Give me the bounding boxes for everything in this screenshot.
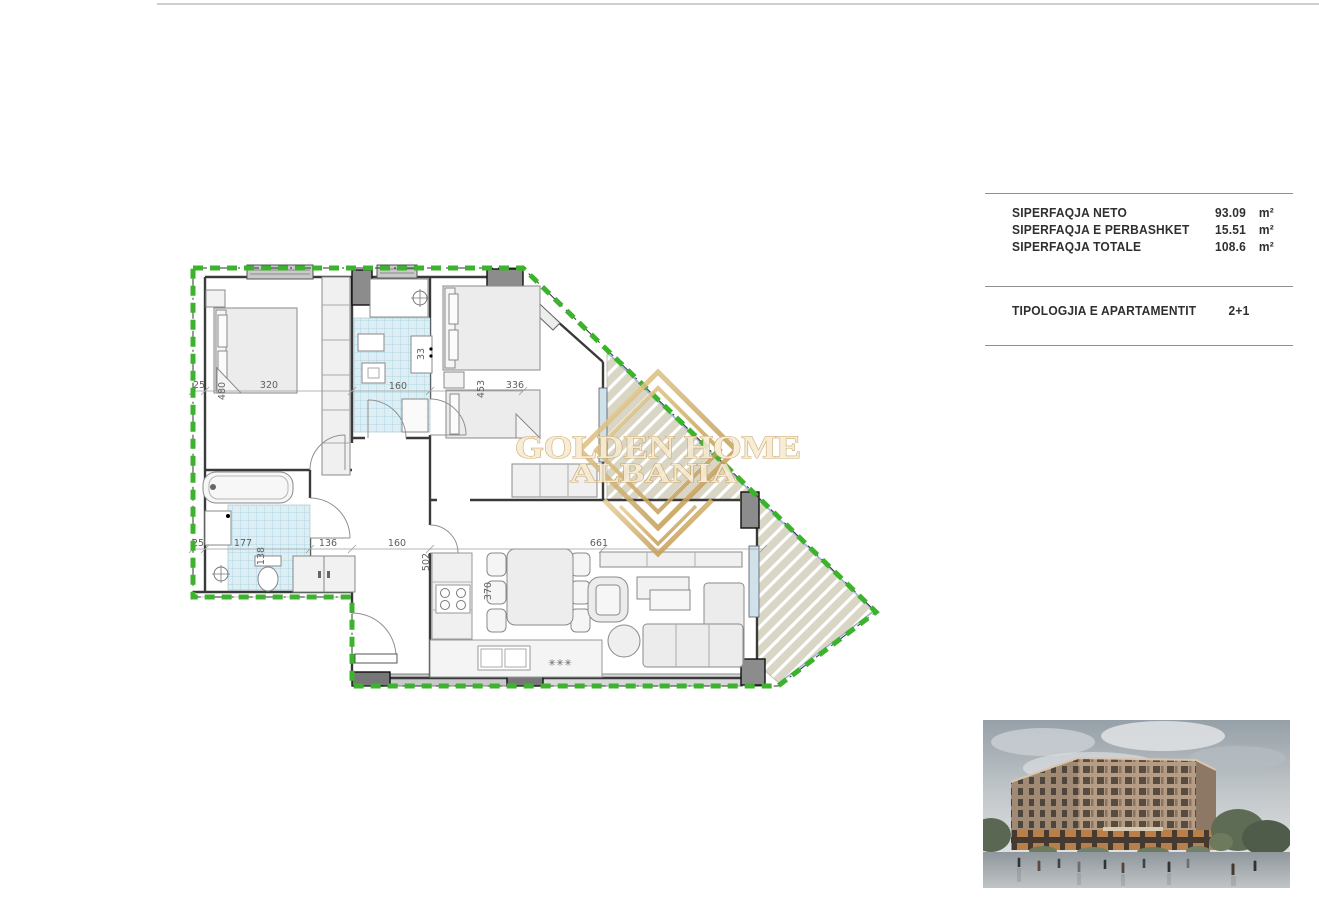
living-room-furniture — [588, 552, 744, 667]
dimension-label: 33 — [416, 348, 427, 360]
area-unit: m² — [1246, 239, 1274, 254]
dimension-label: 136 — [319, 538, 337, 549]
hall-closet — [293, 556, 355, 592]
pavement — [983, 852, 1290, 888]
typology-value: 2+1 — [1204, 303, 1274, 318]
bedroom1-furniture — [206, 277, 350, 475]
area-row-neto: SIPERFAQJA NETO 93.09 m² — [1012, 205, 1274, 223]
dimension-label: 453 — [476, 380, 487, 398]
area-unit: m² — [1246, 222, 1274, 237]
area-rows: SIPERFAQJA NETO 93.09 m² SIPERFAQJA E PE… — [1012, 205, 1274, 256]
floorplan-page: 25 480 320 160 453 336 25 177 138 136 16… — [0, 0, 1319, 911]
area-value: 108.6 — [1200, 239, 1246, 254]
dimension-label: 661 — [590, 538, 608, 549]
typology-row: TIPOLOGJIA E APARTAMENTIT 2+1 — [1012, 303, 1274, 318]
area-unit: m² — [1246, 205, 1274, 220]
floor-plan-drawing: 25 480 320 160 453 336 25 177 138 136 16… — [150, 250, 910, 700]
top-divider — [157, 3, 1319, 5]
area-label: SIPERFAQJA NETO — [1012, 205, 1200, 220]
dish-rack-symbol: ✳✳✳ — [548, 658, 572, 669]
dimension-label: 502 — [421, 553, 432, 571]
area-label: SIPERFAQJA E PERBASHKET — [1012, 222, 1200, 237]
typology-label: TIPOLOGJIA E APARTAMENTIT — [1012, 303, 1204, 318]
dining-table-set — [487, 549, 590, 632]
panel-divider-middle — [985, 286, 1293, 287]
area-value: 15.51 — [1200, 222, 1246, 237]
dimension-label: 370 — [483, 582, 494, 600]
area-row-totale: SIPERFAQJA TOTALE 108.6 m² — [1012, 239, 1274, 257]
dimension-label: 336 — [506, 380, 524, 391]
dimension-label: 177 — [234, 538, 252, 549]
building-render-photo — [983, 720, 1290, 888]
area-row-perbashket: SIPERFAQJA E PERBASHKET 15.51 m² — [1012, 222, 1274, 240]
panel-divider-bottom — [985, 345, 1293, 346]
building — [1011, 758, 1216, 850]
dimension-label: 160 — [389, 381, 407, 392]
panel-divider-top — [985, 193, 1293, 194]
area-value: 93.09 — [1200, 205, 1246, 220]
dimension-label: 320 — [260, 380, 278, 391]
area-label: SIPERFAQJA TOTALE — [1012, 239, 1200, 254]
dimension-label: 480 — [217, 382, 228, 400]
dimension-label: 138 — [256, 547, 267, 565]
dimension-label: 160 — [388, 538, 406, 549]
